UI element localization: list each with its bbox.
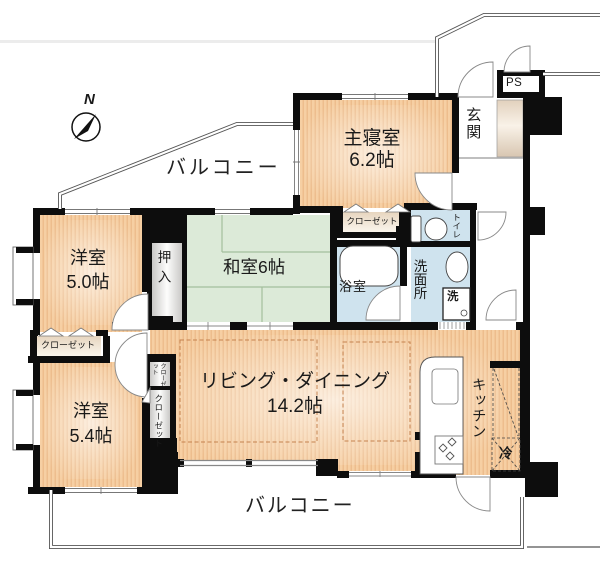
toilet-bowl	[425, 218, 447, 240]
hall-closet-tall-label: クローゼット	[153, 394, 163, 448]
oshiire-label: 押入	[155, 250, 171, 289]
floor-plan: N バルコニー バルコニー 主寝室 6.2帖 玄関 PS クローゼット トイレ …	[0, 0, 600, 568]
western-room-50-name: 洋室	[53, 246, 123, 270]
western-room-50-label: 洋室 5.0帖	[53, 246, 123, 294]
hall-closet-small-label: クローゼット	[150, 363, 166, 389]
toilet-tank	[411, 216, 421, 242]
master-bedroom-size: 6.2帖	[316, 150, 428, 172]
pipe-space-label: PS	[506, 77, 522, 90]
toilet-label: トイレ	[451, 213, 461, 239]
washroom-label: 洗面所	[411, 259, 427, 300]
entrance-label: 玄関	[464, 107, 481, 141]
master-closet-label: クローゼット	[341, 217, 403, 227]
washbasin	[446, 252, 468, 282]
living-dining-label: リビング・ダイニング 14.2帖	[188, 369, 402, 419]
japanese-room-label: 和室6帖	[223, 257, 285, 277]
refrigerator-label: 冷	[499, 446, 513, 462]
stove	[435, 436, 463, 464]
western-room-54-size: 5.4帖	[55, 424, 127, 449]
washer-label: 洗	[447, 291, 459, 304]
master-bedroom-label: 主寝室 6.2帖	[316, 128, 428, 172]
compass-north-label: N	[84, 91, 95, 108]
western-room-50-closet-label: クローゼット	[32, 340, 104, 350]
balcony-bottom-label: バルコニー	[245, 495, 355, 518]
living-dining-size: 14.2帖	[188, 394, 402, 419]
master-bedroom-name: 主寝室	[316, 128, 428, 150]
western-room-54-label: 洋室 5.4帖	[55, 399, 127, 449]
balcony-top-label: バルコニー	[166, 157, 281, 180]
western-room-50-size: 5.0帖	[53, 270, 123, 294]
bathroom-label: 浴室	[339, 280, 367, 295]
living-dining-name: リビング・ダイニング	[188, 369, 402, 394]
kitchen-sink	[432, 369, 458, 404]
kitchen-label: キッチン	[469, 377, 486, 439]
western-room-54-name: 洋室	[55, 399, 127, 424]
compass	[72, 113, 100, 141]
